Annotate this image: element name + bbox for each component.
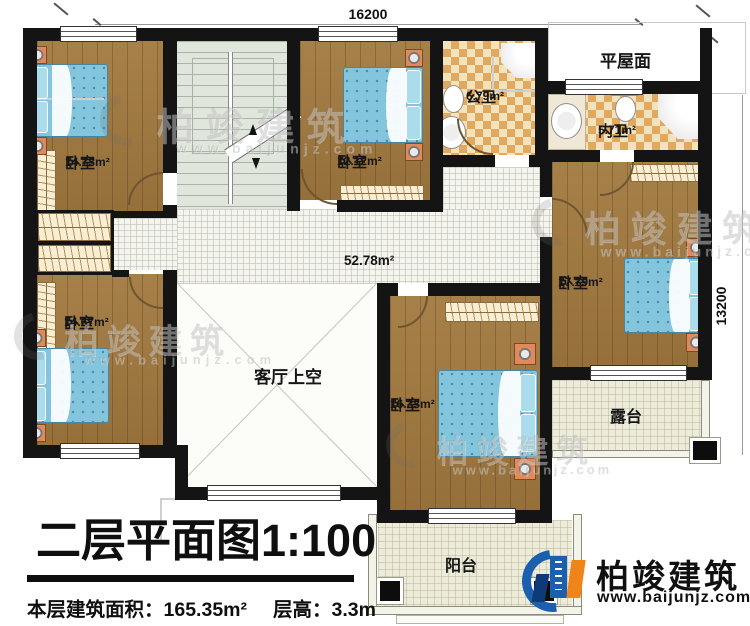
room-area: 14.73m² [65,156,110,169]
floor-height-label: 层高： [273,599,332,621]
terrace-column [690,438,720,463]
closet-shelf [38,213,111,241]
dimension-line-right [742,95,743,455]
window [60,26,137,42]
wall [540,283,552,510]
bed-sheet [669,259,689,332]
wardrobe [340,185,424,201]
plan-info-line: 本层建筑面积：165.35m²层高：3.3m [27,593,376,622]
room-area: 5.71m² [598,124,636,137]
bed-sheet [498,371,520,456]
room-area: 12.12m² [337,155,382,168]
wall [287,41,300,211]
floor-height-value: 3.3m [332,599,376,621]
wall [634,150,712,162]
room-area: 6.79m² [466,90,504,103]
closet-shelf [38,245,111,272]
wall [548,150,600,162]
wall [700,28,712,94]
pillow [406,70,421,104]
wall [430,155,495,167]
wall [430,41,443,207]
brand-building-blue-icon [550,556,567,598]
plan-title: 二层平面图1:100 [36,504,376,569]
label-flat-roof: 平屋面 [600,47,651,72]
stair-rail [228,52,233,204]
hallway-branch [443,167,540,209]
nightstand [405,49,423,67]
plan-title-text: 二层平面图 [36,515,261,566]
window [318,26,398,42]
terrace-parapet [552,450,710,458]
stair-direction-arrow-up [249,124,257,135]
wardrobe [630,164,707,182]
nightstand [405,143,423,161]
dimension-depth: 13200 [713,278,729,334]
window [60,443,140,459]
nightstand [514,458,536,480]
hallway [177,209,552,283]
wall [377,283,390,523]
label-hall-area: 52.78m² [344,253,394,268]
wall [23,28,37,458]
plan-scale: 1:100 [261,515,376,566]
wall [112,270,129,277]
axis-tick [695,4,710,17]
dimension-width: 16200 [340,6,396,22]
dimension-depth-wrap: 13200 [710,278,732,334]
nightstand [514,343,536,365]
toilet [615,96,636,122]
pillow [520,414,536,452]
floor-plan-canvas: 16200 13200 [0,0,750,626]
sink [551,103,582,139]
wardrobe [37,150,56,212]
pillow [520,374,536,412]
bed-sheet [386,68,406,142]
wall [698,94,712,380]
wall [428,283,552,296]
wardrobe [445,302,539,322]
title-rule [27,575,354,582]
room-area: 14.67m² [64,316,109,329]
brand-website: www.baijunjz.com [597,589,750,607]
floor-area-value: 165.35m² [164,599,247,621]
wall [112,211,165,218]
stair-direction-arrow-down [252,158,260,169]
bed-sheet [52,65,72,136]
wall [535,28,548,167]
window [428,508,516,524]
window [590,365,687,381]
label-balcony: 阳台 [445,552,477,576]
wall [540,162,552,197]
wall [163,41,177,173]
bed-sheet [51,349,71,422]
brand-logo: 柏竣建筑 www.baijunjz.com [514,542,750,622]
wall [163,270,177,445]
pillow [406,106,421,140]
wall [337,200,443,212]
wall [377,283,398,296]
label-living-void: 客厅上空 [254,363,322,388]
window [207,485,341,501]
wall [163,205,177,218]
toilet [443,85,464,113]
window [565,79,643,95]
axis-tick [53,2,68,15]
room-area: 16.33m² [390,398,435,411]
label-terrace: 露台 [610,403,642,427]
room-area: 17.79m² [558,276,603,289]
hallway-closet-nook [112,218,177,270]
balcony-column [377,578,403,604]
floor-area-label: 本层建筑面积： [27,599,164,621]
wall [175,487,209,500]
